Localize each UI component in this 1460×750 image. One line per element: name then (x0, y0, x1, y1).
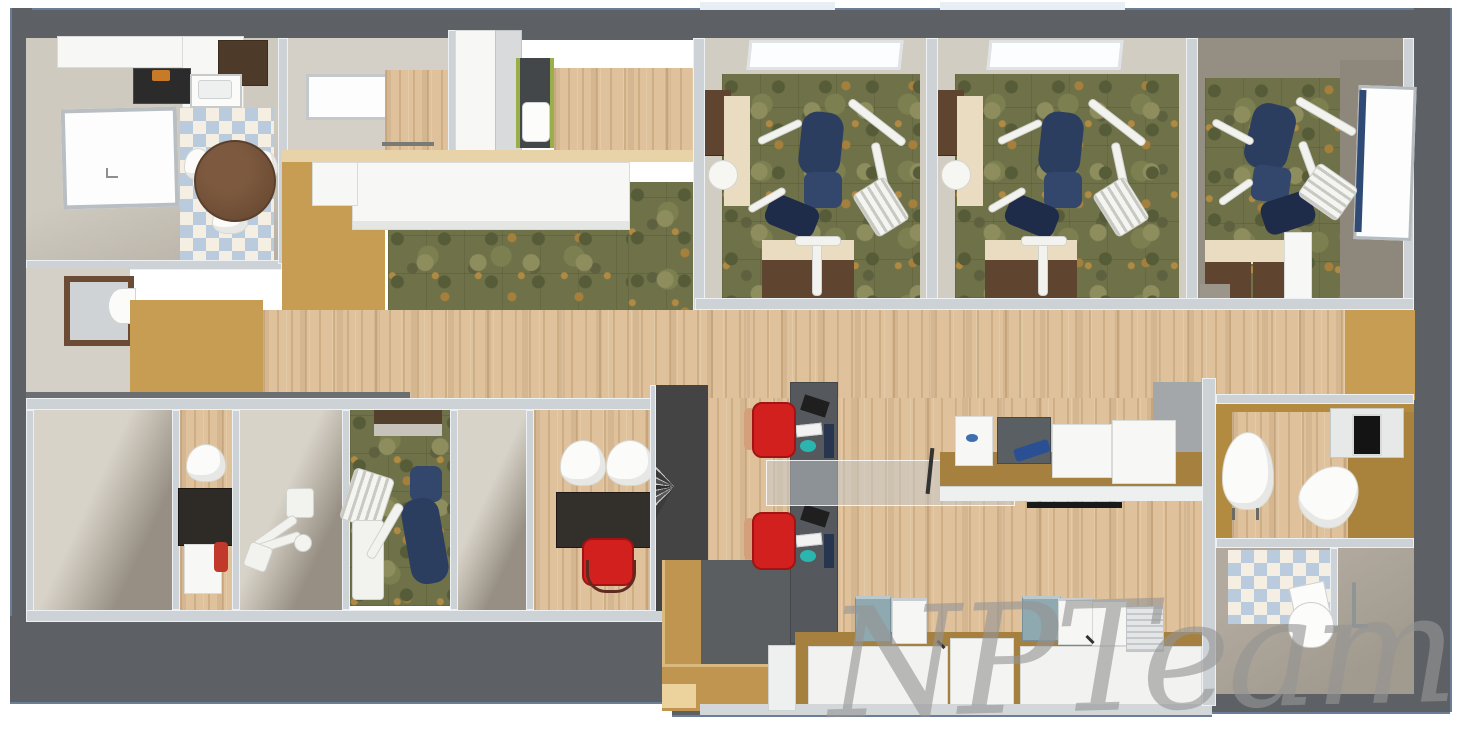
xray-wall-plate (286, 488, 314, 518)
wall-consult-bath (1216, 538, 1414, 548)
doctor-office-red-chair (214, 542, 228, 572)
printer-2 (1112, 420, 1176, 484)
op2-chair-seat (1044, 172, 1082, 208)
storage-cube-teal-1 (855, 596, 891, 642)
side-entry-notch (768, 645, 796, 711)
front-desk-right-top (1020, 646, 1202, 710)
hygiene-chair-seat (410, 466, 442, 502)
wall-op2-op3 (1186, 38, 1198, 310)
doctor-office-desk (178, 488, 234, 546)
break-room-round-table (194, 140, 276, 222)
storage-cube-teal-2 (1022, 596, 1061, 641)
reception-counter-long (352, 162, 630, 230)
storage-cube-white-3 (1092, 599, 1127, 646)
wall-bottomrooms-west (26, 410, 34, 620)
coffee-machine-accent (966, 434, 978, 442)
grab-bar-horizontal (1352, 624, 1368, 628)
hygiene-op-counter (374, 424, 442, 436)
corridor-gold-wall-right (1345, 310, 1415, 400)
ws1-teal-accent (800, 440, 816, 452)
ws1-red-chair (752, 402, 796, 458)
front-desk-left-top (808, 646, 948, 710)
ws2-red-chair (752, 512, 796, 570)
wall-op1-op2 (926, 38, 938, 310)
consult-guest-chair-2 (606, 440, 654, 486)
steril-wood-floor (554, 68, 698, 152)
storage-cube-white-1 (892, 598, 927, 644)
wall-top-rooms-south (695, 298, 1414, 310)
wall-d-e (450, 410, 458, 610)
consult-room-north-wall (1216, 394, 1414, 404)
doctor-office-guest-chair (186, 444, 226, 482)
kitchen-sink-basin (198, 80, 232, 99)
op1-doctor-stool (708, 160, 738, 190)
equipment-counter-slot (1027, 502, 1122, 508)
countertop-jars (152, 70, 170, 81)
lounge-chair-leg-2 (1256, 508, 1259, 520)
xray-joint (294, 534, 312, 552)
operatory-2-skylight (986, 40, 1123, 70)
wall-tv-screen (1352, 414, 1382, 456)
op1-mobile-stand-top (795, 236, 841, 246)
wall-bottomrooms-south (26, 610, 672, 622)
op1-chair-backrest (797, 110, 845, 178)
corridor-gold-wall-left (130, 300, 263, 396)
reception-counter-step (312, 162, 358, 206)
steril-trim-left (516, 58, 520, 148)
wall-right-rooms-west (1202, 378, 1216, 706)
op1-side-counter (724, 96, 750, 206)
op1-mobile-stand-pole (812, 240, 822, 296)
storage-room (34, 410, 172, 610)
op1-chair-seat (804, 172, 842, 208)
op2-side-counter (957, 96, 983, 206)
window-latch (106, 168, 118, 178)
dental-office-floorplan-render: NPTeam (0, 0, 1460, 750)
reception-carpet-east (628, 182, 700, 312)
entry-walkway (950, 638, 1014, 714)
toilet-bowl (1288, 602, 1334, 648)
ws1-monitor (824, 424, 834, 458)
printer-1 (1052, 424, 1112, 478)
steril-tall-cabinet (455, 30, 497, 154)
office-wood-floor (385, 70, 448, 152)
exterior-wall-right (1414, 8, 1452, 712)
break-room-window (61, 106, 180, 209)
ws2-monitor (824, 534, 834, 568)
skylight-well-glow-1 (700, 2, 835, 10)
steril-sink (522, 102, 550, 142)
op3-corner-sink-unit (1284, 232, 1312, 302)
op2-mobile-stand-pole (1038, 240, 1048, 296)
office-credenza-edge (382, 142, 434, 146)
op2-mobile-stand-top (1021, 236, 1067, 246)
op2-chair-backrest (1037, 110, 1085, 178)
op2-doctor-stool (941, 160, 971, 190)
equipment-counter-edge (940, 486, 1205, 501)
exterior-wall-bottom-left (10, 616, 675, 704)
corridor-horizontal (263, 310, 1415, 400)
op1-rear-cabinet (762, 260, 854, 302)
grab-bar-vertical (1352, 582, 1356, 628)
consult-chair-base (586, 560, 636, 593)
ws2-teal-accent (800, 550, 816, 562)
lounge-chair-leg-1 (1232, 508, 1235, 520)
op2-rear-cabinet (985, 260, 1077, 302)
wall-e-f (526, 410, 534, 610)
entry-niche (458, 410, 526, 610)
skylight-well-glow-2 (940, 2, 1125, 10)
wall-op1-west (693, 38, 705, 310)
radiator-vent (1126, 606, 1164, 652)
office-window (306, 74, 392, 120)
wall-bottomrooms-north (26, 398, 700, 410)
banquette-end-cap (662, 684, 696, 708)
wall-b-c (232, 410, 240, 610)
consult-guest-chair-1 (560, 440, 606, 486)
operatory-1-skylight (746, 40, 903, 70)
